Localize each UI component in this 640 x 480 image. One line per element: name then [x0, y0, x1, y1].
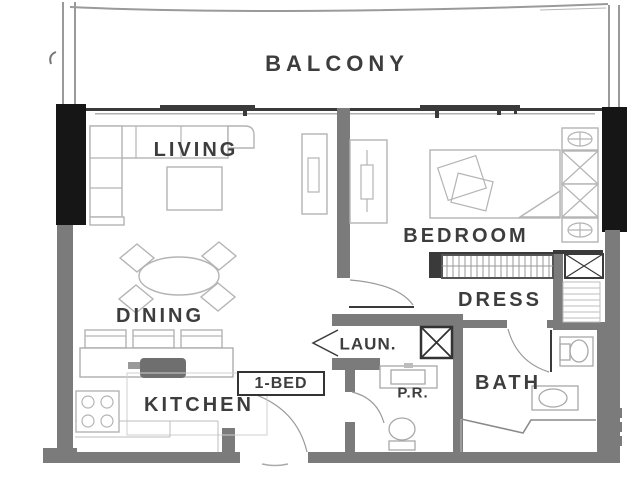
- room-label-powder-room: P.R.: [397, 386, 428, 401]
- floor-plan: BALCONY LIVING BEDROOM DINING DRESS LAUN…: [0, 0, 640, 480]
- room-label-dress: DRESS: [458, 290, 542, 310]
- room-label-living: LIVING: [154, 140, 239, 160]
- room-label-dining: DINING: [116, 306, 204, 326]
- tv-unit-bedroom: [350, 140, 387, 223]
- tv-unit-living: [302, 134, 327, 214]
- dining-set: [119, 242, 236, 313]
- room-label-balcony: BALCONY: [265, 53, 409, 75]
- bathtub: [461, 419, 596, 452]
- room-label-bath: BATH: [475, 373, 541, 393]
- room-label-laundry: LAUN.: [340, 336, 397, 353]
- nightstand-top: [562, 128, 598, 150]
- powder-room-door: [352, 392, 384, 423]
- bar-stools: [85, 330, 222, 348]
- ottoman: [167, 167, 222, 210]
- unit-type-label: 1-BED: [254, 375, 307, 393]
- washing-machine: [421, 327, 452, 358]
- unit-type-badge: 1-BED: [237, 371, 325, 396]
- bath-door: [508, 329, 551, 372]
- bath-toilet: [560, 337, 593, 366]
- room-label-bedroom: BEDROOM: [403, 226, 528, 246]
- nightstand-bottom: [562, 218, 598, 242]
- bed: [430, 150, 598, 218]
- wardrobe: [442, 255, 553, 278]
- stairs: [563, 282, 600, 322]
- bedroom-door: [349, 280, 414, 307]
- pr-toilet: [389, 418, 415, 450]
- laundry-bifold-door: [313, 330, 338, 356]
- room-label-kitchen: KITCHEN: [144, 395, 254, 415]
- shaft: [565, 254, 603, 278]
- stove: [76, 391, 119, 432]
